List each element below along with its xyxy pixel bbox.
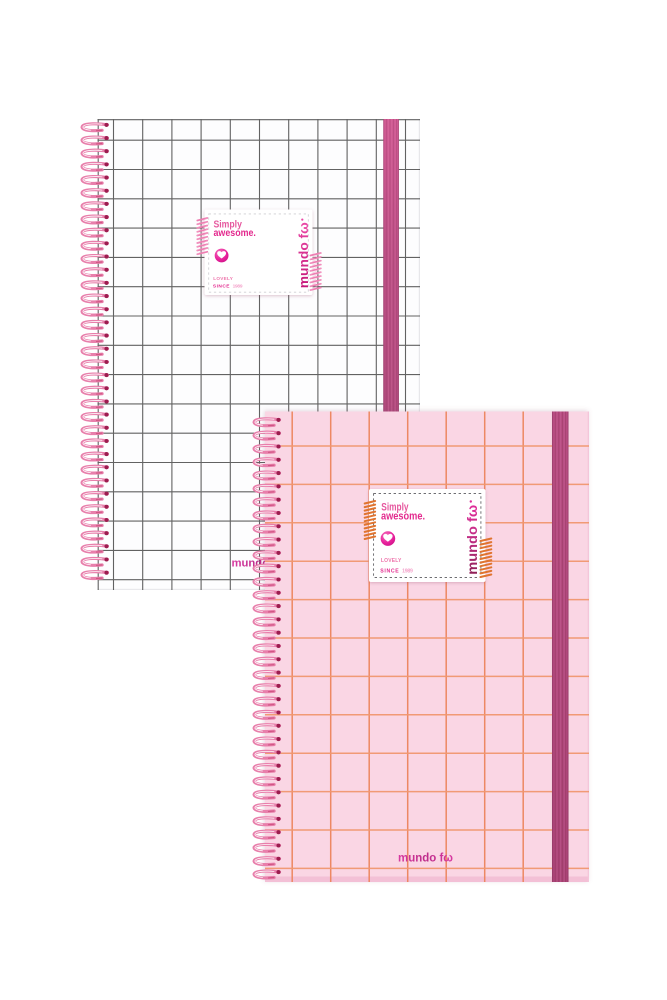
- svg-text:mundo fω: mundo fω: [296, 222, 311, 288]
- svg-text:SINCE: SINCE: [380, 568, 399, 574]
- svg-text:SINCE: SINCE: [213, 284, 230, 290]
- svg-text:LOVELY: LOVELY: [381, 558, 402, 564]
- svg-text:awesome.: awesome.: [214, 228, 257, 239]
- svg-text:mundo fω: mundo fω: [464, 505, 480, 575]
- svg-text:awesome.: awesome.: [381, 511, 425, 523]
- svg-text:1989: 1989: [402, 568, 413, 574]
- svg-text:LOVELY: LOVELY: [213, 276, 233, 281]
- svg-text:mundo fω: mundo fω: [398, 852, 453, 865]
- svg-text:1989: 1989: [233, 284, 243, 290]
